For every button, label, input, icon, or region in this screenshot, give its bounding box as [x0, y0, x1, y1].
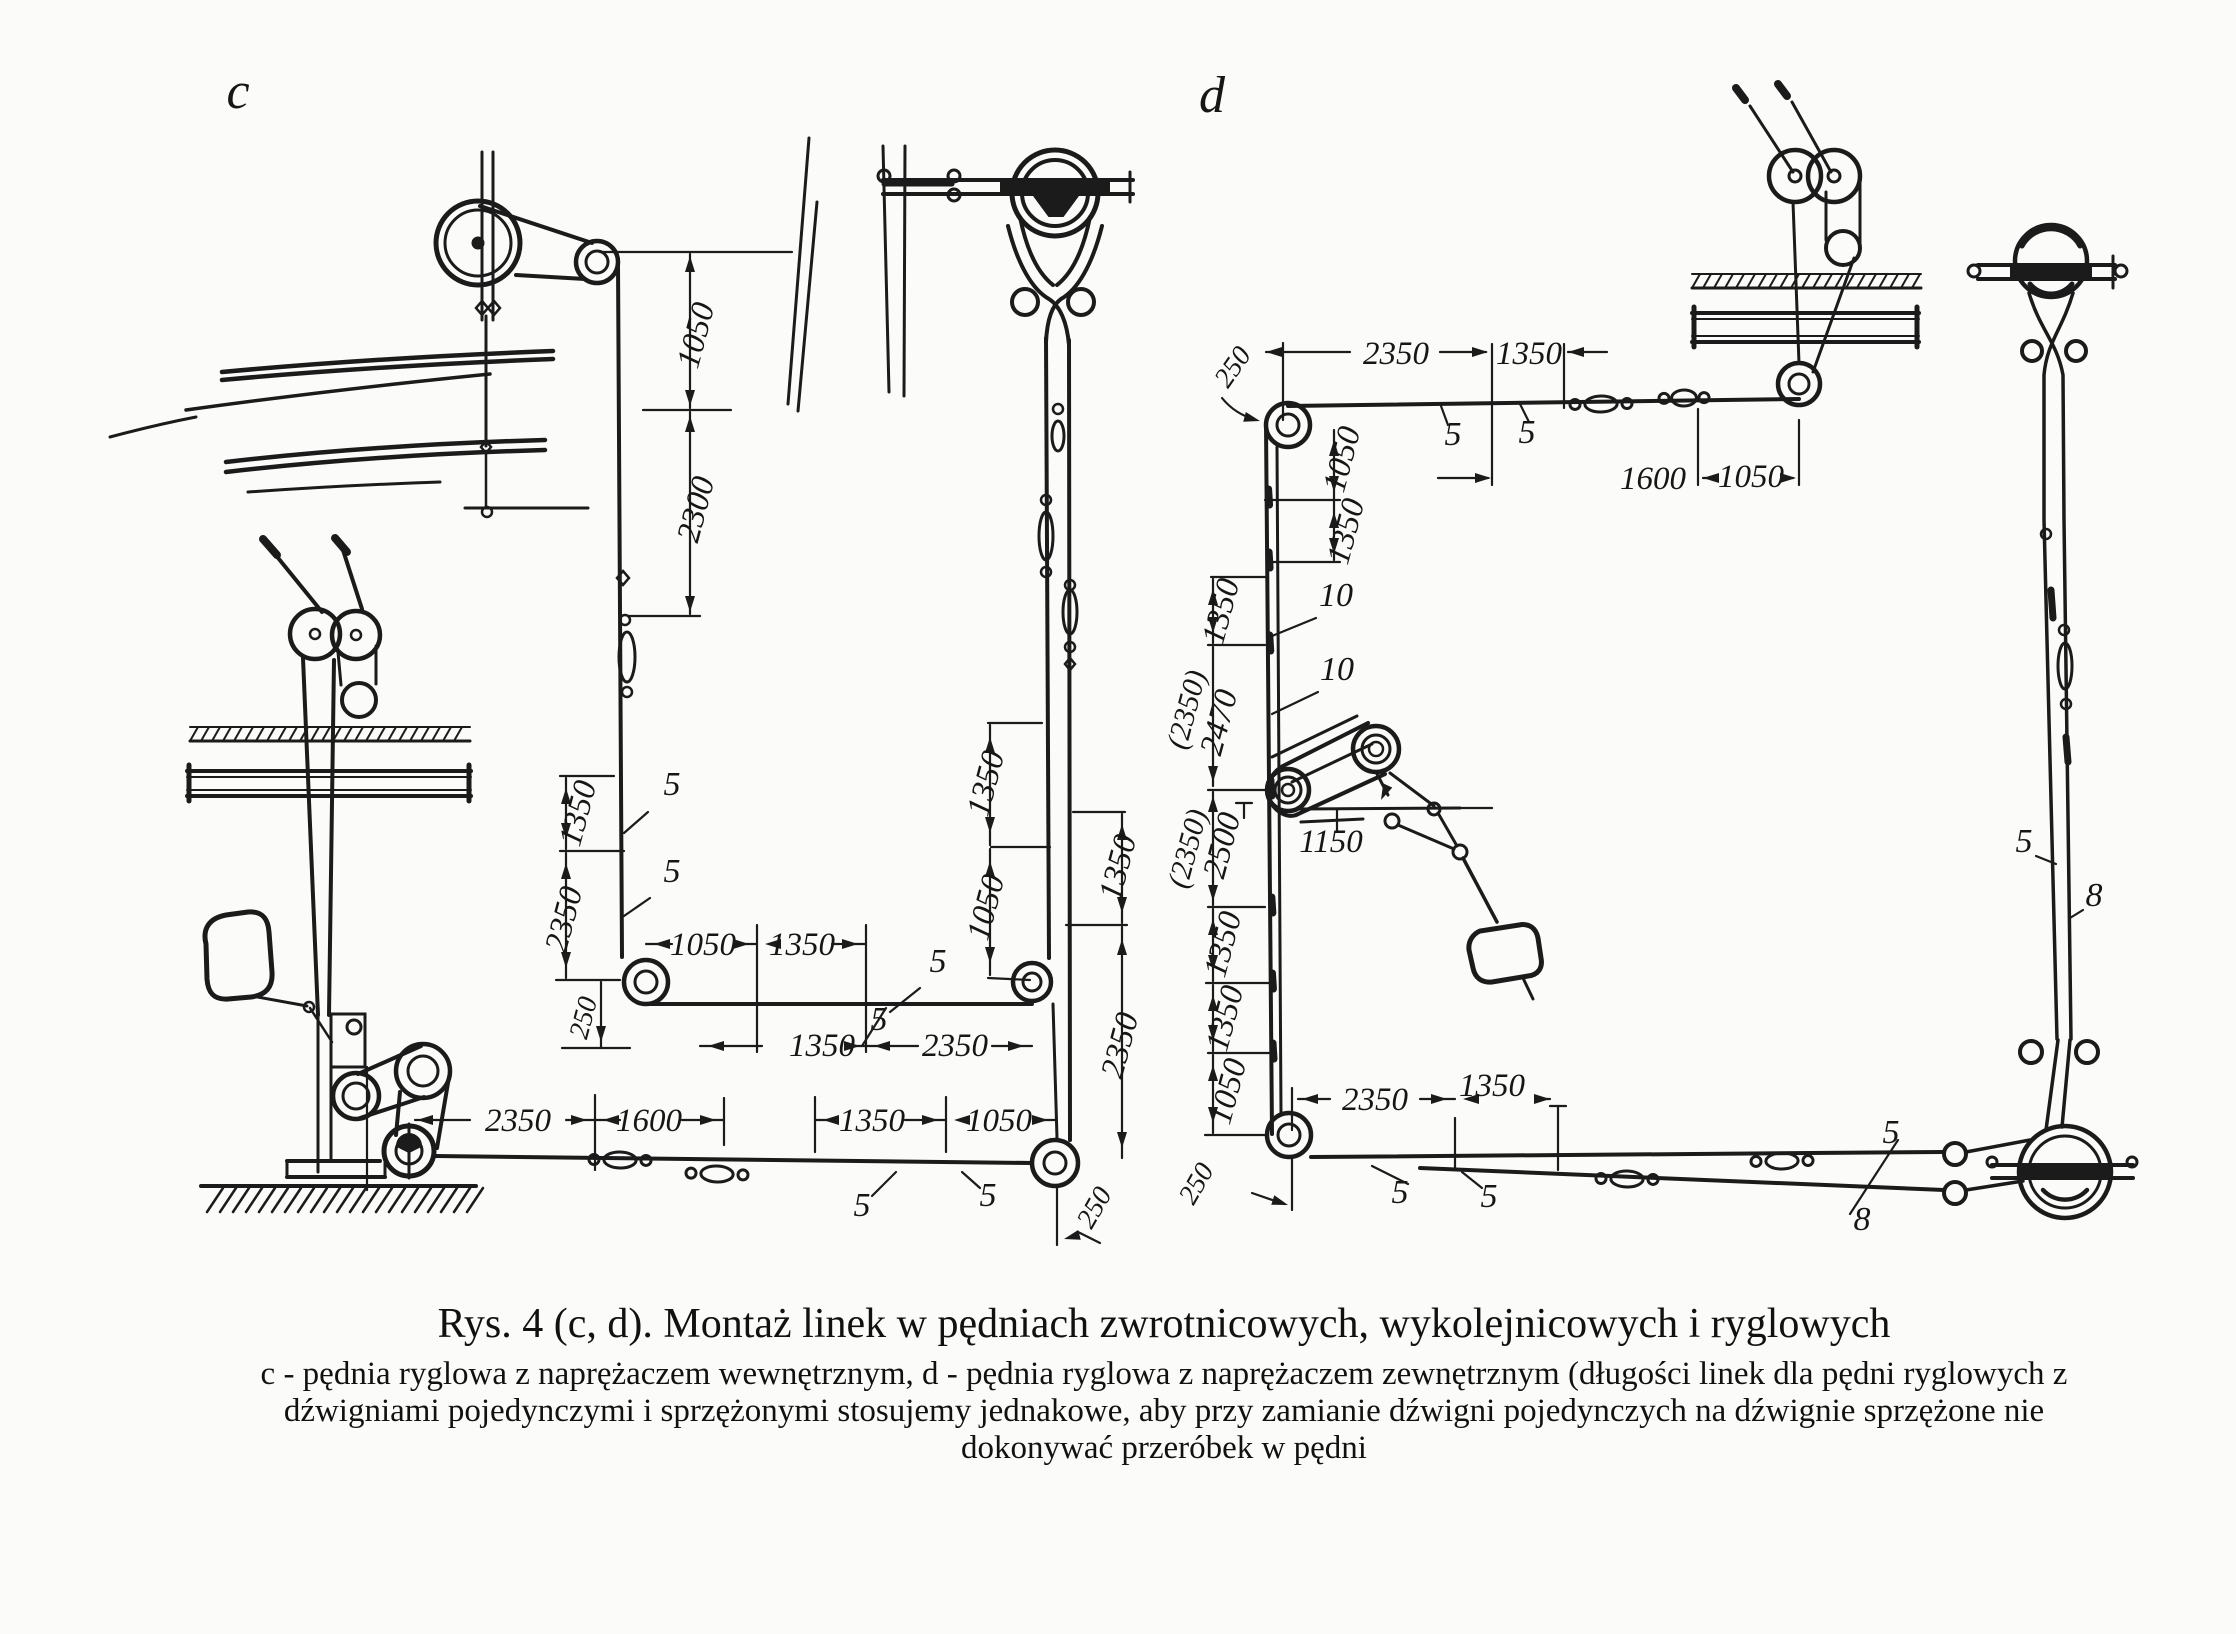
svg-text:1050: 1050 — [960, 870, 1012, 944]
svg-text:2350: 2350 — [485, 1103, 552, 1139]
svg-text:2350: 2350 — [922, 1028, 989, 1064]
svg-text:1350: 1350 — [1459, 1068, 1526, 1104]
svg-text:2350: 2350 — [1094, 1008, 1146, 1082]
svg-text:1350: 1350 — [552, 776, 604, 850]
svg-text:2350: 2350 — [1363, 336, 1430, 372]
svg-text:1050: 1050 — [670, 927, 737, 963]
svg-text:1350: 1350 — [960, 746, 1012, 820]
svg-text:1350: 1350 — [1320, 494, 1372, 568]
svg-text:10: 10 — [1320, 651, 1354, 688]
svg-text:5: 5 — [980, 1177, 997, 1214]
svg-text:1150: 1150 — [1299, 824, 1363, 860]
svg-text:1350: 1350 — [769, 927, 836, 963]
svg-text:1050: 1050 — [1718, 459, 1785, 495]
svg-text:5: 5 — [1481, 1178, 1498, 1215]
svg-text:1050: 1050 — [670, 298, 722, 372]
svg-text:5: 5 — [854, 1187, 871, 1224]
svg-text:1350: 1350 — [1496, 336, 1563, 372]
svg-text:250: 250 — [1173, 1158, 1221, 1210]
svg-text:1350: 1350 — [1197, 907, 1249, 981]
svg-text:1350: 1350 — [1199, 981, 1251, 1055]
svg-text:2350: 2350 — [538, 882, 590, 956]
svg-text:1350: 1350 — [1092, 830, 1144, 904]
svg-text:8: 8 — [2086, 877, 2103, 914]
svg-text:10: 10 — [1319, 577, 1353, 614]
svg-text:c: c — [226, 63, 249, 120]
svg-text:5: 5 — [930, 943, 947, 980]
svg-text:250: 250 — [563, 994, 604, 1043]
svg-text:1050: 1050 — [1202, 1054, 1254, 1128]
svg-text:1350: 1350 — [839, 1103, 906, 1139]
svg-text:5: 5 — [664, 853, 681, 890]
svg-text:5: 5 — [2016, 823, 2033, 860]
svg-text:8: 8 — [1854, 1201, 1871, 1238]
svg-text:1600: 1600 — [1620, 461, 1687, 497]
svg-text:1600: 1600 — [616, 1103, 683, 1139]
svg-text:1350: 1350 — [1195, 574, 1247, 648]
svg-text:1050: 1050 — [1316, 422, 1368, 496]
svg-text:d: d — [1199, 67, 1226, 124]
svg-text:250: 250 — [1208, 341, 1257, 393]
svg-text:2300: 2300 — [670, 472, 722, 546]
svg-text:5: 5 — [664, 766, 681, 803]
svg-text:5: 5 — [1883, 1114, 1900, 1151]
svg-text:2350: 2350 — [1342, 1082, 1409, 1118]
svg-text:250: 250 — [1071, 1182, 1119, 1234]
svg-text:1050: 1050 — [966, 1103, 1033, 1139]
